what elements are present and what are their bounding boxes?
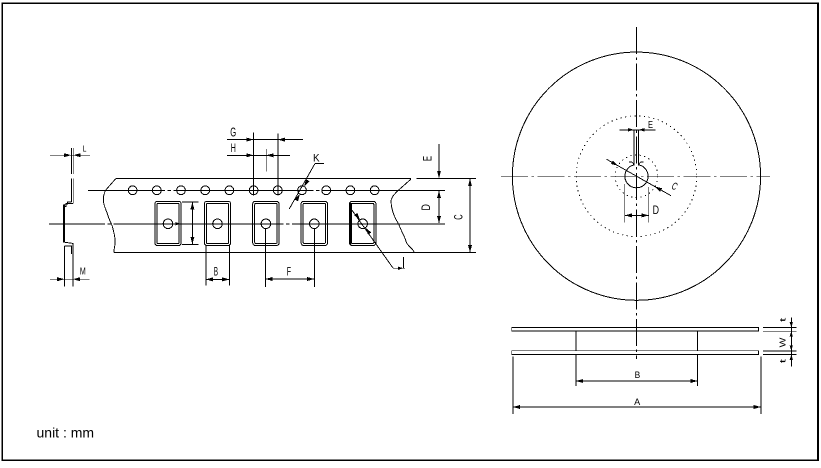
svg-text:A: A [634, 397, 641, 407]
svg-text:H: H [231, 141, 236, 155]
svg-text:M: M [80, 266, 86, 277]
svg-text:B: B [214, 265, 218, 279]
svg-text:K: K [313, 152, 320, 164]
svg-text:unit : mm: unit : mm [37, 425, 95, 441]
svg-text:D: D [653, 204, 659, 217]
svg-text:B: B [635, 370, 641, 380]
svg-text:E: E [648, 120, 653, 131]
svg-text:D: D [419, 204, 433, 211]
svg-text:W: W [779, 337, 788, 347]
svg-text:F: F [287, 264, 291, 278]
svg-text:E: E [421, 156, 435, 161]
svg-text:G: G [230, 124, 236, 139]
svg-text:C: C [452, 214, 466, 220]
svg-text:L: L [83, 143, 87, 153]
